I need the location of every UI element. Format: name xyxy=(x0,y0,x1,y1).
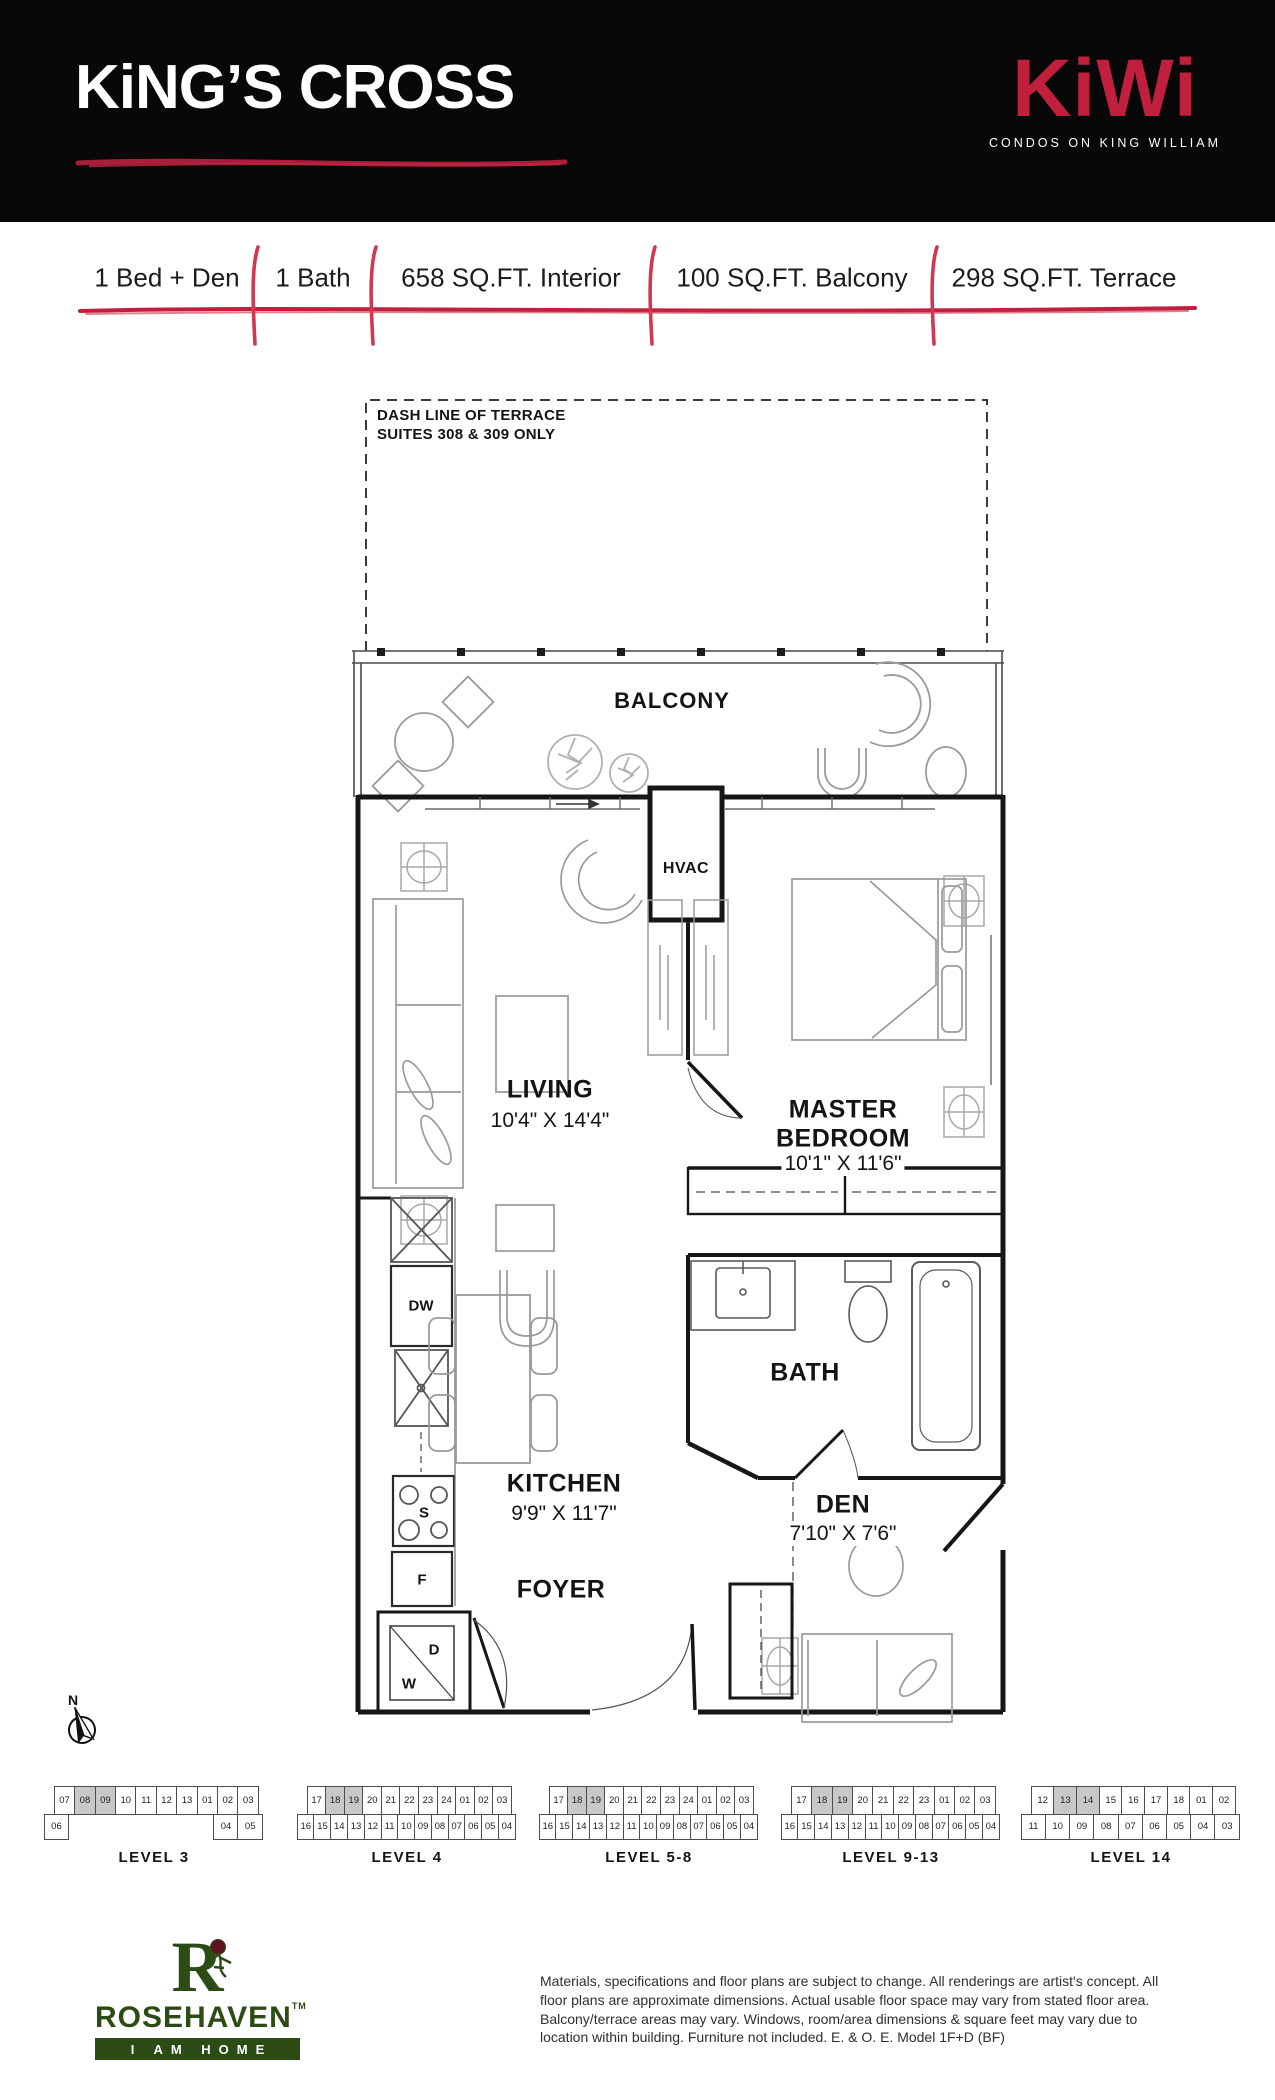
keyplan-unit-05: 05 xyxy=(481,1814,499,1840)
keyplan-unit-02: 02 xyxy=(1212,1786,1236,1815)
dishwasher-label: DW xyxy=(407,1298,436,1315)
terrace-note-line2: SUITES 308 & 309 ONLY xyxy=(377,426,555,443)
keyplan-label: LEVEL 5-8 xyxy=(540,1849,758,1866)
room-label-master-1: MASTER xyxy=(789,1096,898,1125)
keyplan-unit-22: 22 xyxy=(893,1786,915,1815)
keyplan-unit-01: 01 xyxy=(697,1786,717,1815)
keyplan-unit-08: 08 xyxy=(74,1786,96,1815)
room-label-hvac: HVAC xyxy=(661,860,711,878)
spec-item: 658 SQ.FT. Interior xyxy=(401,263,621,294)
keyplan-unit-11: 11 xyxy=(381,1814,399,1840)
keyplan-row: 121314151617180102 xyxy=(1032,1786,1236,1815)
compass-n-label: N xyxy=(68,1692,78,1708)
keyplan-row: 07080910111213010203 xyxy=(55,1786,259,1815)
keyplan-row: 1718192021222324010203 xyxy=(550,1786,754,1815)
keyplan-row: 1718192021222324010203 xyxy=(308,1786,512,1815)
keyplan-unit-23: 23 xyxy=(660,1786,680,1815)
keyplan-unit-24: 24 xyxy=(679,1786,699,1815)
keyplan-unit-21: 21 xyxy=(381,1786,401,1815)
keyplan-unit-03: 03 xyxy=(237,1786,259,1815)
keyplan-unit-03: 03 xyxy=(974,1786,996,1815)
keyplan-unit-10: 10 xyxy=(881,1814,899,1840)
keyplan-unit-23: 23 xyxy=(418,1786,438,1815)
keyplan-unit-21: 21 xyxy=(872,1786,894,1815)
keyplan-unit-02: 02 xyxy=(217,1786,239,1815)
keyplan-unit-10: 10 xyxy=(115,1786,137,1815)
keyplan-unit-11: 11 xyxy=(623,1814,641,1840)
keyplan-unit-17: 17 xyxy=(307,1786,327,1815)
room-label-master-2: BEDROOM xyxy=(776,1125,910,1154)
room-label-foyer: FOYER xyxy=(517,1576,606,1605)
room-label-balcony: BALCONY xyxy=(614,688,730,714)
floorplan-sheet: KiNG’S CROSS KiWi CONDOS ON KING WILLIAM xyxy=(0,0,1275,2100)
room-dims-living: 10'4" X 14'4" xyxy=(491,1109,610,1133)
keyplan-row: 111009080706050403 xyxy=(1022,1815,1240,1840)
keyplan-unit-02: 02 xyxy=(716,1786,736,1815)
room-label-kitchen: KITCHEN xyxy=(507,1470,622,1499)
keyplan-unit-07: 07 xyxy=(54,1786,76,1815)
keyplan-unit-06: 06 xyxy=(44,1814,70,1840)
keyplan-unit-01: 01 xyxy=(1189,1786,1213,1815)
keyplan-unit-04: 04 xyxy=(498,1814,516,1840)
room-label-bath: BATH xyxy=(770,1359,840,1388)
keyplan-unit-16: 16 xyxy=(781,1814,799,1840)
spec-item: 1 Bed + Den xyxy=(94,263,239,294)
keyplan-row: 16151413121110090807060504 xyxy=(782,1815,1000,1840)
keyplan-unit-17: 17 xyxy=(791,1786,813,1815)
keyplan-unit-08: 08 xyxy=(673,1814,691,1840)
keyplan-unit-09: 09 xyxy=(1069,1814,1095,1840)
keyplan-unit-14: 14 xyxy=(814,1814,832,1840)
keyplan-unit-04: 04 xyxy=(213,1814,239,1840)
keyplan-label: LEVEL 3 xyxy=(45,1849,263,1866)
keyplan-unit-16: 16 xyxy=(297,1814,315,1840)
keyplan-unit-14: 14 xyxy=(330,1814,348,1840)
keyplan-row: 16151413121110090807060504 xyxy=(540,1815,758,1840)
keyplan-unit-19: 19 xyxy=(586,1786,606,1815)
keyplan-unit-03: 03 xyxy=(1214,1814,1240,1840)
keyplan-level-14: 121314151617180102111009080706050403LEVE… xyxy=(1022,1786,1240,1866)
keyplan-unit-15: 15 xyxy=(1099,1786,1123,1815)
keyplan-unit-06: 06 xyxy=(948,1814,966,1840)
keyplan-unit-07: 07 xyxy=(448,1814,466,1840)
keyplan-unit-11: 11 xyxy=(135,1786,157,1815)
room-dims-den: 7'10" X 7'6" xyxy=(787,1522,900,1546)
keyplan-unit-20: 20 xyxy=(852,1786,874,1815)
keyplan-unit-15: 15 xyxy=(313,1814,331,1840)
keyplan-unit-04: 04 xyxy=(1190,1814,1216,1840)
keyplan-unit-09: 09 xyxy=(414,1814,432,1840)
keyplan-level-3: 07080910111213010203060405LEVEL 3 xyxy=(45,1786,263,1866)
keyplan-unit-23: 23 xyxy=(913,1786,935,1815)
keyplan-unit-15: 15 xyxy=(555,1814,573,1840)
keyplan-unit-12: 12 xyxy=(364,1814,382,1840)
keyplan-unit-16: 16 xyxy=(539,1814,557,1840)
spec-underline xyxy=(80,308,1195,311)
room-label-living: LIVING xyxy=(507,1076,593,1105)
keyplan-unit-09: 09 xyxy=(656,1814,674,1840)
keyplan-unit-07: 07 xyxy=(690,1814,708,1840)
keyplan-unit-05: 05 xyxy=(237,1814,263,1840)
keyplan-label: LEVEL 14 xyxy=(1022,1849,1240,1866)
washer-label: W xyxy=(400,1676,418,1693)
keyplan-level-9-13: 1718192021222301020316151413121110090807… xyxy=(782,1786,1000,1866)
keyplan-unit-06: 06 xyxy=(1142,1814,1168,1840)
spec-item: 1 Bath xyxy=(275,263,350,294)
keyplan-unit-04: 04 xyxy=(982,1814,1000,1840)
keyplan-unit-09: 09 xyxy=(95,1786,117,1815)
keyplan-row: 17181920212223010203 xyxy=(792,1786,996,1815)
keyplan-unit-13: 13 xyxy=(176,1786,198,1815)
keyplan-unit-07: 07 xyxy=(1118,1814,1144,1840)
keyplan-unit-05: 05 xyxy=(1166,1814,1192,1840)
keyplan-unit-12: 12 xyxy=(606,1814,624,1840)
keyplan-unit-11: 11 xyxy=(1021,1814,1047,1840)
keyplan-unit-22: 22 xyxy=(399,1786,419,1815)
keyplan-unit-05: 05 xyxy=(723,1814,741,1840)
room-dims-kitchen: 9'9" X 11'7" xyxy=(511,1502,616,1526)
keyplan-unit-22: 22 xyxy=(641,1786,661,1815)
terrace-note-line1: DASH LINE OF TERRACE xyxy=(377,407,566,424)
keyplan-unit-24: 24 xyxy=(437,1786,457,1815)
keyplan-unit-02: 02 xyxy=(474,1786,494,1815)
keyplan-unit-18: 18 xyxy=(1167,1786,1191,1815)
keyplan-unit-19: 19 xyxy=(344,1786,364,1815)
keyplan-unit-10: 10 xyxy=(397,1814,415,1840)
keyplan-unit-15: 15 xyxy=(797,1814,815,1840)
keyplan-unit-01: 01 xyxy=(934,1786,956,1815)
keyplan-unit-03: 03 xyxy=(734,1786,754,1815)
keyplan-level-4: 1718192021222324010203161514131211100908… xyxy=(298,1786,516,1866)
keyplan-unit-05: 05 xyxy=(965,1814,983,1840)
keyplan-unit-19: 19 xyxy=(832,1786,854,1815)
keyplan-row: 060405 xyxy=(45,1815,263,1840)
keyplan-unit-21: 21 xyxy=(623,1786,643,1815)
keyplan-unit-13: 13 xyxy=(589,1814,607,1840)
keyplan-unit-13: 13 xyxy=(1053,1786,1077,1815)
keyplan-unit-03: 03 xyxy=(492,1786,512,1815)
keyplan-unit-01: 01 xyxy=(197,1786,219,1815)
room-dims-master: 10'1" X 11'6" xyxy=(781,1152,904,1176)
keyplan-unit-07: 07 xyxy=(932,1814,950,1840)
room-label-den: DEN xyxy=(816,1491,870,1520)
dryer-label: D xyxy=(427,1642,442,1659)
keyplan-unit-13: 13 xyxy=(831,1814,849,1840)
keyplan-unit-14: 14 xyxy=(1076,1786,1100,1815)
rosehaven-tagline: I AM HOME xyxy=(95,2038,300,2060)
keyplan-unit-06: 06 xyxy=(706,1814,724,1840)
keyplan-unit-12: 12 xyxy=(848,1814,866,1840)
keyplan-unit-04: 04 xyxy=(740,1814,758,1840)
keyplan-unit-10: 10 xyxy=(1045,1814,1071,1840)
keyplan-unit-20: 20 xyxy=(362,1786,382,1815)
keyplan-unit-18: 18 xyxy=(325,1786,345,1815)
keyplan-unit-08: 08 xyxy=(431,1814,449,1840)
disclaimer-text: Materials, specifications and floor plan… xyxy=(540,1972,1188,2047)
keyplan-level-5-8: 1718192021222324010203161514131211100908… xyxy=(540,1786,758,1866)
keyplan-unit-11: 11 xyxy=(865,1814,883,1840)
keyplan-unit-02: 02 xyxy=(954,1786,976,1815)
fridge-label: F xyxy=(415,1572,428,1589)
red-accents xyxy=(0,0,1275,2100)
rosehaven-logo: R ROSEHAVENTM I AM HOME xyxy=(95,1933,300,2060)
keyplan-unit-18: 18 xyxy=(811,1786,833,1815)
keyplan-unit-06: 06 xyxy=(464,1814,482,1840)
keyplan-unit-09: 09 xyxy=(898,1814,916,1840)
spec-item: 100 SQ.FT. Balcony xyxy=(676,263,907,294)
stove-label: S xyxy=(417,1505,431,1522)
keyplan-unit-14: 14 xyxy=(572,1814,590,1840)
rosehaven-monogram: R xyxy=(172,1933,224,2001)
keyplan-unit-08: 08 xyxy=(915,1814,933,1840)
keyplan-unit-13: 13 xyxy=(347,1814,365,1840)
keyplan-unit-10: 10 xyxy=(639,1814,657,1840)
keyplan-unit-12: 12 xyxy=(156,1786,178,1815)
rose-icon xyxy=(204,1937,238,1981)
keyplan-label: LEVEL 4 xyxy=(298,1849,516,1866)
keyplan-unit-01: 01 xyxy=(455,1786,475,1815)
spec-item: 298 SQ.FT. Terrace xyxy=(952,263,1177,294)
keyplan-label: LEVEL 9-13 xyxy=(782,1849,1000,1866)
keyplan-unit-17: 17 xyxy=(1144,1786,1168,1815)
keyplan-unit-08: 08 xyxy=(1093,1814,1119,1840)
keyplan-unit-20: 20 xyxy=(604,1786,624,1815)
keyplan-unit-17: 17 xyxy=(549,1786,569,1815)
keyplan-unit-18: 18 xyxy=(567,1786,587,1815)
keyplan-row: 16151413121110090807060504 xyxy=(298,1815,516,1840)
keyplan-unit-12: 12 xyxy=(1031,1786,1055,1815)
keyplan-unit-16: 16 xyxy=(1121,1786,1145,1815)
